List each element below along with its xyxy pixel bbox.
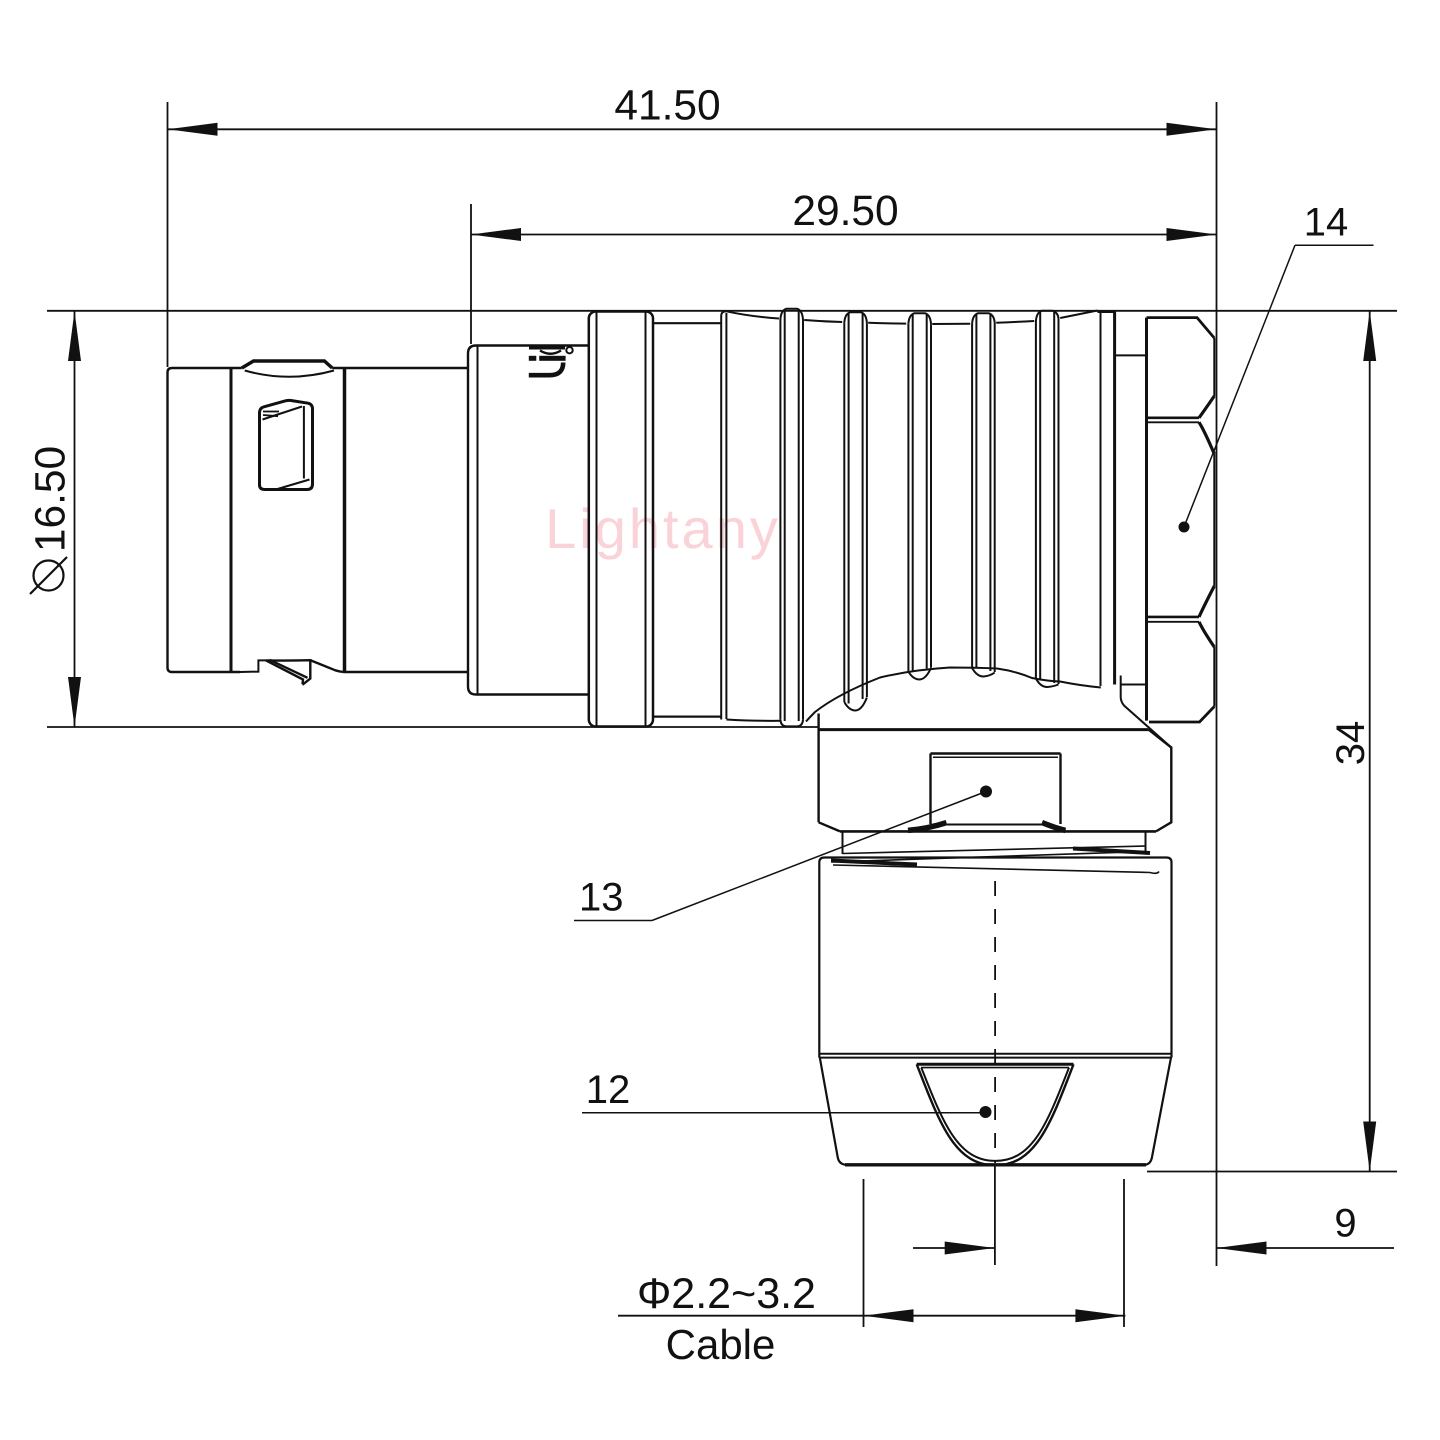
svg-text:9: 9	[1334, 1202, 1356, 1246]
svg-text:34: 34	[1329, 721, 1373, 766]
svg-text:13: 13	[579, 876, 624, 920]
svg-text:14: 14	[1304, 201, 1349, 245]
svg-text:16.50: 16.50	[28, 446, 75, 552]
svg-text:12: 12	[586, 1068, 631, 1112]
svg-text:Cable: Cable	[666, 1321, 776, 1368]
svg-text:29.50: 29.50	[792, 188, 898, 235]
svg-text:41.50: 41.50	[614, 83, 720, 130]
svg-text:Lightany: Lightany	[545, 497, 781, 560]
svg-text:Φ2.2~3.2: Φ2.2~3.2	[637, 1270, 816, 1318]
